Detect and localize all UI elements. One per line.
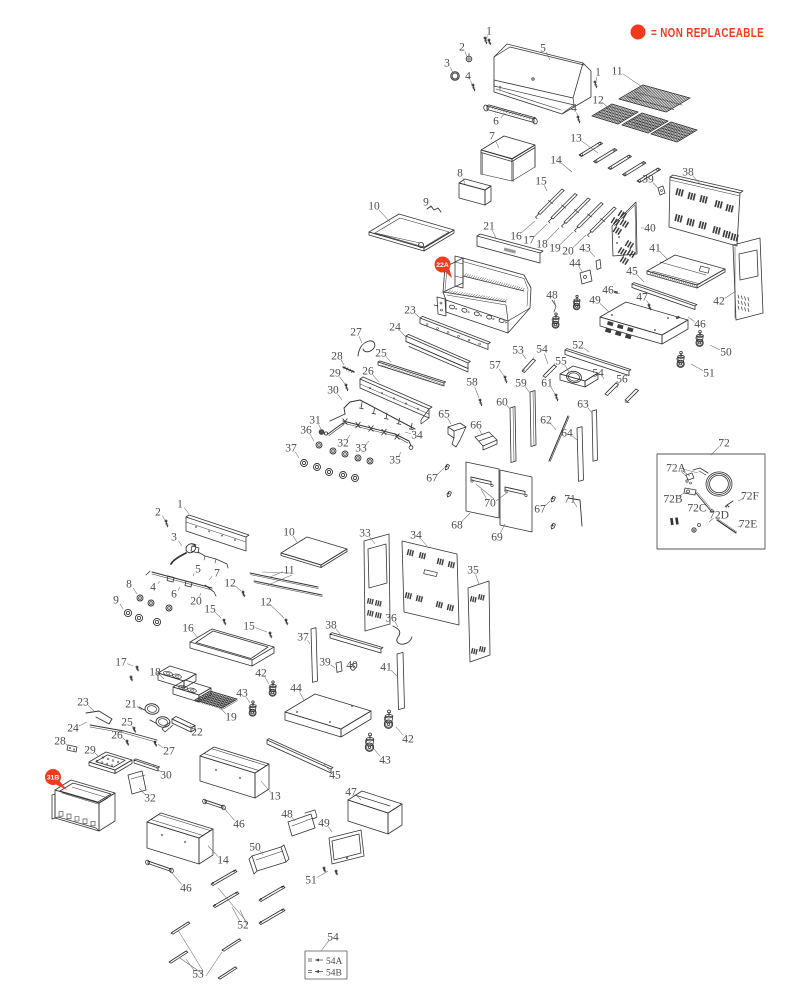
svg-text:29: 29	[329, 368, 341, 380]
svg-text:= NON REPLACEABLE: = NON REPLACEABLE	[651, 26, 764, 40]
svg-text:15: 15	[243, 621, 255, 633]
svg-text:49: 49	[589, 295, 601, 307]
svg-text:46: 46	[180, 883, 192, 895]
svg-text:63: 63	[577, 399, 589, 411]
svg-text:46: 46	[233, 819, 245, 831]
svg-text:47: 47	[345, 787, 357, 799]
svg-text:67: 67	[426, 473, 438, 485]
svg-text:45: 45	[626, 266, 638, 278]
svg-text:54: 54	[536, 344, 548, 356]
svg-text:53: 53	[512, 345, 524, 357]
svg-text:35: 35	[467, 565, 479, 577]
svg-text:9: 9	[423, 197, 429, 209]
svg-text:2: 2	[155, 507, 161, 519]
svg-text:7: 7	[214, 568, 220, 580]
svg-text:59: 59	[515, 378, 527, 390]
svg-text:58: 58	[466, 377, 478, 389]
svg-text:24: 24	[389, 322, 401, 334]
svg-text:18: 18	[536, 239, 548, 251]
svg-text:55: 55	[555, 356, 567, 368]
svg-text:67: 67	[534, 504, 546, 516]
svg-text:15: 15	[535, 176, 547, 188]
svg-text:26: 26	[111, 730, 123, 742]
svg-text:37: 37	[297, 632, 309, 644]
svg-text:8: 8	[126, 579, 132, 591]
svg-text:37: 37	[285, 443, 297, 455]
svg-text:8: 8	[457, 168, 463, 180]
svg-text:4: 4	[571, 103, 577, 115]
svg-text:25: 25	[121, 717, 133, 729]
svg-text:27: 27	[350, 327, 362, 339]
svg-text:54B: 54B	[326, 969, 342, 979]
svg-text:31B: 31B	[47, 774, 60, 781]
svg-text:69: 69	[491, 532, 503, 544]
svg-text:23: 23	[77, 697, 89, 709]
svg-text:53: 53	[192, 969, 204, 981]
svg-text:35: 35	[389, 455, 401, 467]
svg-text:14: 14	[550, 155, 562, 167]
svg-text:54A: 54A	[326, 957, 343, 967]
svg-text:4: 4	[150, 582, 156, 594]
svg-text:41: 41	[380, 662, 392, 674]
svg-text:34: 34	[410, 530, 422, 542]
svg-text:15: 15	[204, 604, 216, 616]
svg-text:22: 22	[191, 727, 203, 739]
svg-text:11: 11	[611, 66, 622, 78]
svg-text:20: 20	[190, 596, 202, 608]
svg-text:72: 72	[718, 438, 730, 450]
svg-text:12: 12	[592, 95, 604, 107]
svg-text:62: 62	[540, 415, 552, 427]
svg-text:72B: 72B	[663, 494, 683, 506]
svg-text:43: 43	[579, 243, 591, 255]
svg-text:43: 43	[236, 688, 248, 700]
svg-text:40: 40	[644, 223, 656, 235]
svg-text:5: 5	[540, 43, 546, 55]
svg-text:64: 64	[561, 428, 573, 440]
svg-text:1: 1	[595, 67, 601, 79]
svg-text:54: 54	[327, 932, 339, 944]
svg-text:60: 60	[496, 397, 508, 409]
svg-text:54: 54	[592, 368, 604, 380]
svg-text:7: 7	[489, 131, 495, 143]
svg-text:13: 13	[269, 791, 281, 803]
svg-text:17: 17	[523, 235, 535, 247]
svg-text:70: 70	[484, 498, 496, 510]
svg-text:25: 25	[375, 348, 387, 360]
svg-text:51: 51	[703, 368, 715, 380]
svg-text:41: 41	[649, 243, 661, 255]
svg-text:34: 34	[411, 430, 423, 442]
svg-text:48: 48	[281, 809, 293, 821]
svg-text:28: 28	[54, 736, 66, 748]
svg-text:17: 17	[115, 657, 127, 669]
svg-text:19: 19	[549, 243, 561, 255]
svg-text:44: 44	[290, 683, 302, 695]
svg-text:44: 44	[569, 258, 581, 270]
svg-text:39: 39	[642, 174, 654, 186]
svg-text:21: 21	[125, 699, 137, 711]
svg-text:50: 50	[249, 842, 261, 854]
svg-text:45: 45	[329, 770, 341, 782]
svg-text:72F: 72F	[741, 491, 759, 503]
svg-text:46: 46	[602, 285, 614, 297]
svg-text:29: 29	[84, 745, 96, 757]
svg-text:20: 20	[562, 246, 574, 258]
svg-text:57: 57	[489, 360, 501, 372]
svg-text:51: 51	[305, 875, 317, 887]
svg-text:42: 42	[255, 668, 267, 680]
svg-text:22A: 22A	[436, 262, 449, 269]
svg-text:3: 3	[444, 58, 450, 70]
svg-text:36: 36	[300, 425, 312, 437]
svg-text:33: 33	[355, 443, 367, 455]
svg-text:27: 27	[163, 746, 175, 758]
svg-text:9: 9	[113, 595, 119, 607]
svg-text:40: 40	[346, 660, 358, 672]
svg-text:39: 39	[319, 657, 331, 669]
svg-text:26: 26	[362, 366, 374, 378]
svg-text:71: 71	[564, 494, 576, 506]
svg-text:72C: 72C	[687, 503, 707, 515]
svg-text:13: 13	[570, 133, 582, 145]
svg-text:72A: 72A	[666, 463, 687, 475]
svg-text:65: 65	[438, 409, 450, 421]
svg-text:47: 47	[636, 292, 648, 304]
svg-text:30: 30	[160, 770, 172, 782]
svg-text:6: 6	[171, 589, 177, 601]
svg-text:4: 4	[465, 71, 471, 83]
svg-text:3: 3	[171, 532, 177, 544]
svg-text:72E: 72E	[739, 519, 758, 531]
svg-text:48: 48	[546, 290, 558, 302]
svg-text:1: 1	[486, 26, 492, 38]
svg-text:24: 24	[67, 723, 79, 735]
svg-text:21: 21	[483, 221, 495, 233]
svg-text:16: 16	[510, 231, 522, 243]
svg-text:49: 49	[318, 818, 330, 830]
svg-text:12: 12	[224, 578, 236, 590]
svg-text:38: 38	[325, 620, 337, 632]
svg-text:38: 38	[682, 167, 694, 179]
svg-text:56: 56	[616, 374, 628, 386]
svg-text:43: 43	[379, 755, 391, 767]
svg-text:12: 12	[260, 597, 272, 609]
svg-text:72D: 72D	[709, 510, 729, 522]
svg-text:5: 5	[195, 564, 201, 576]
svg-text:30: 30	[327, 385, 339, 397]
svg-text:46: 46	[694, 319, 706, 331]
svg-text:42: 42	[402, 734, 414, 746]
svg-text:10: 10	[368, 201, 380, 213]
svg-text:18: 18	[149, 667, 161, 679]
svg-text:19: 19	[225, 712, 237, 724]
svg-text:36: 36	[385, 613, 397, 625]
svg-text:66: 66	[470, 420, 482, 432]
svg-text:14: 14	[217, 855, 229, 867]
svg-text:10: 10	[283, 527, 295, 539]
svg-text:42: 42	[713, 296, 725, 308]
svg-text:52: 52	[237, 920, 249, 932]
svg-text:68: 68	[451, 520, 463, 532]
svg-text:11: 11	[283, 565, 294, 577]
svg-text:50: 50	[720, 347, 732, 359]
svg-text:33: 33	[359, 528, 371, 540]
svg-text:32: 32	[337, 438, 349, 450]
svg-text:2: 2	[459, 42, 465, 54]
svg-text:32: 32	[144, 793, 156, 805]
svg-text:6: 6	[493, 116, 499, 128]
svg-text:52: 52	[572, 340, 584, 352]
svg-text:61: 61	[541, 378, 553, 390]
svg-text:23: 23	[404, 305, 416, 317]
svg-text:28: 28	[331, 351, 343, 363]
svg-text:1: 1	[177, 499, 183, 511]
svg-text:16: 16	[182, 623, 194, 635]
